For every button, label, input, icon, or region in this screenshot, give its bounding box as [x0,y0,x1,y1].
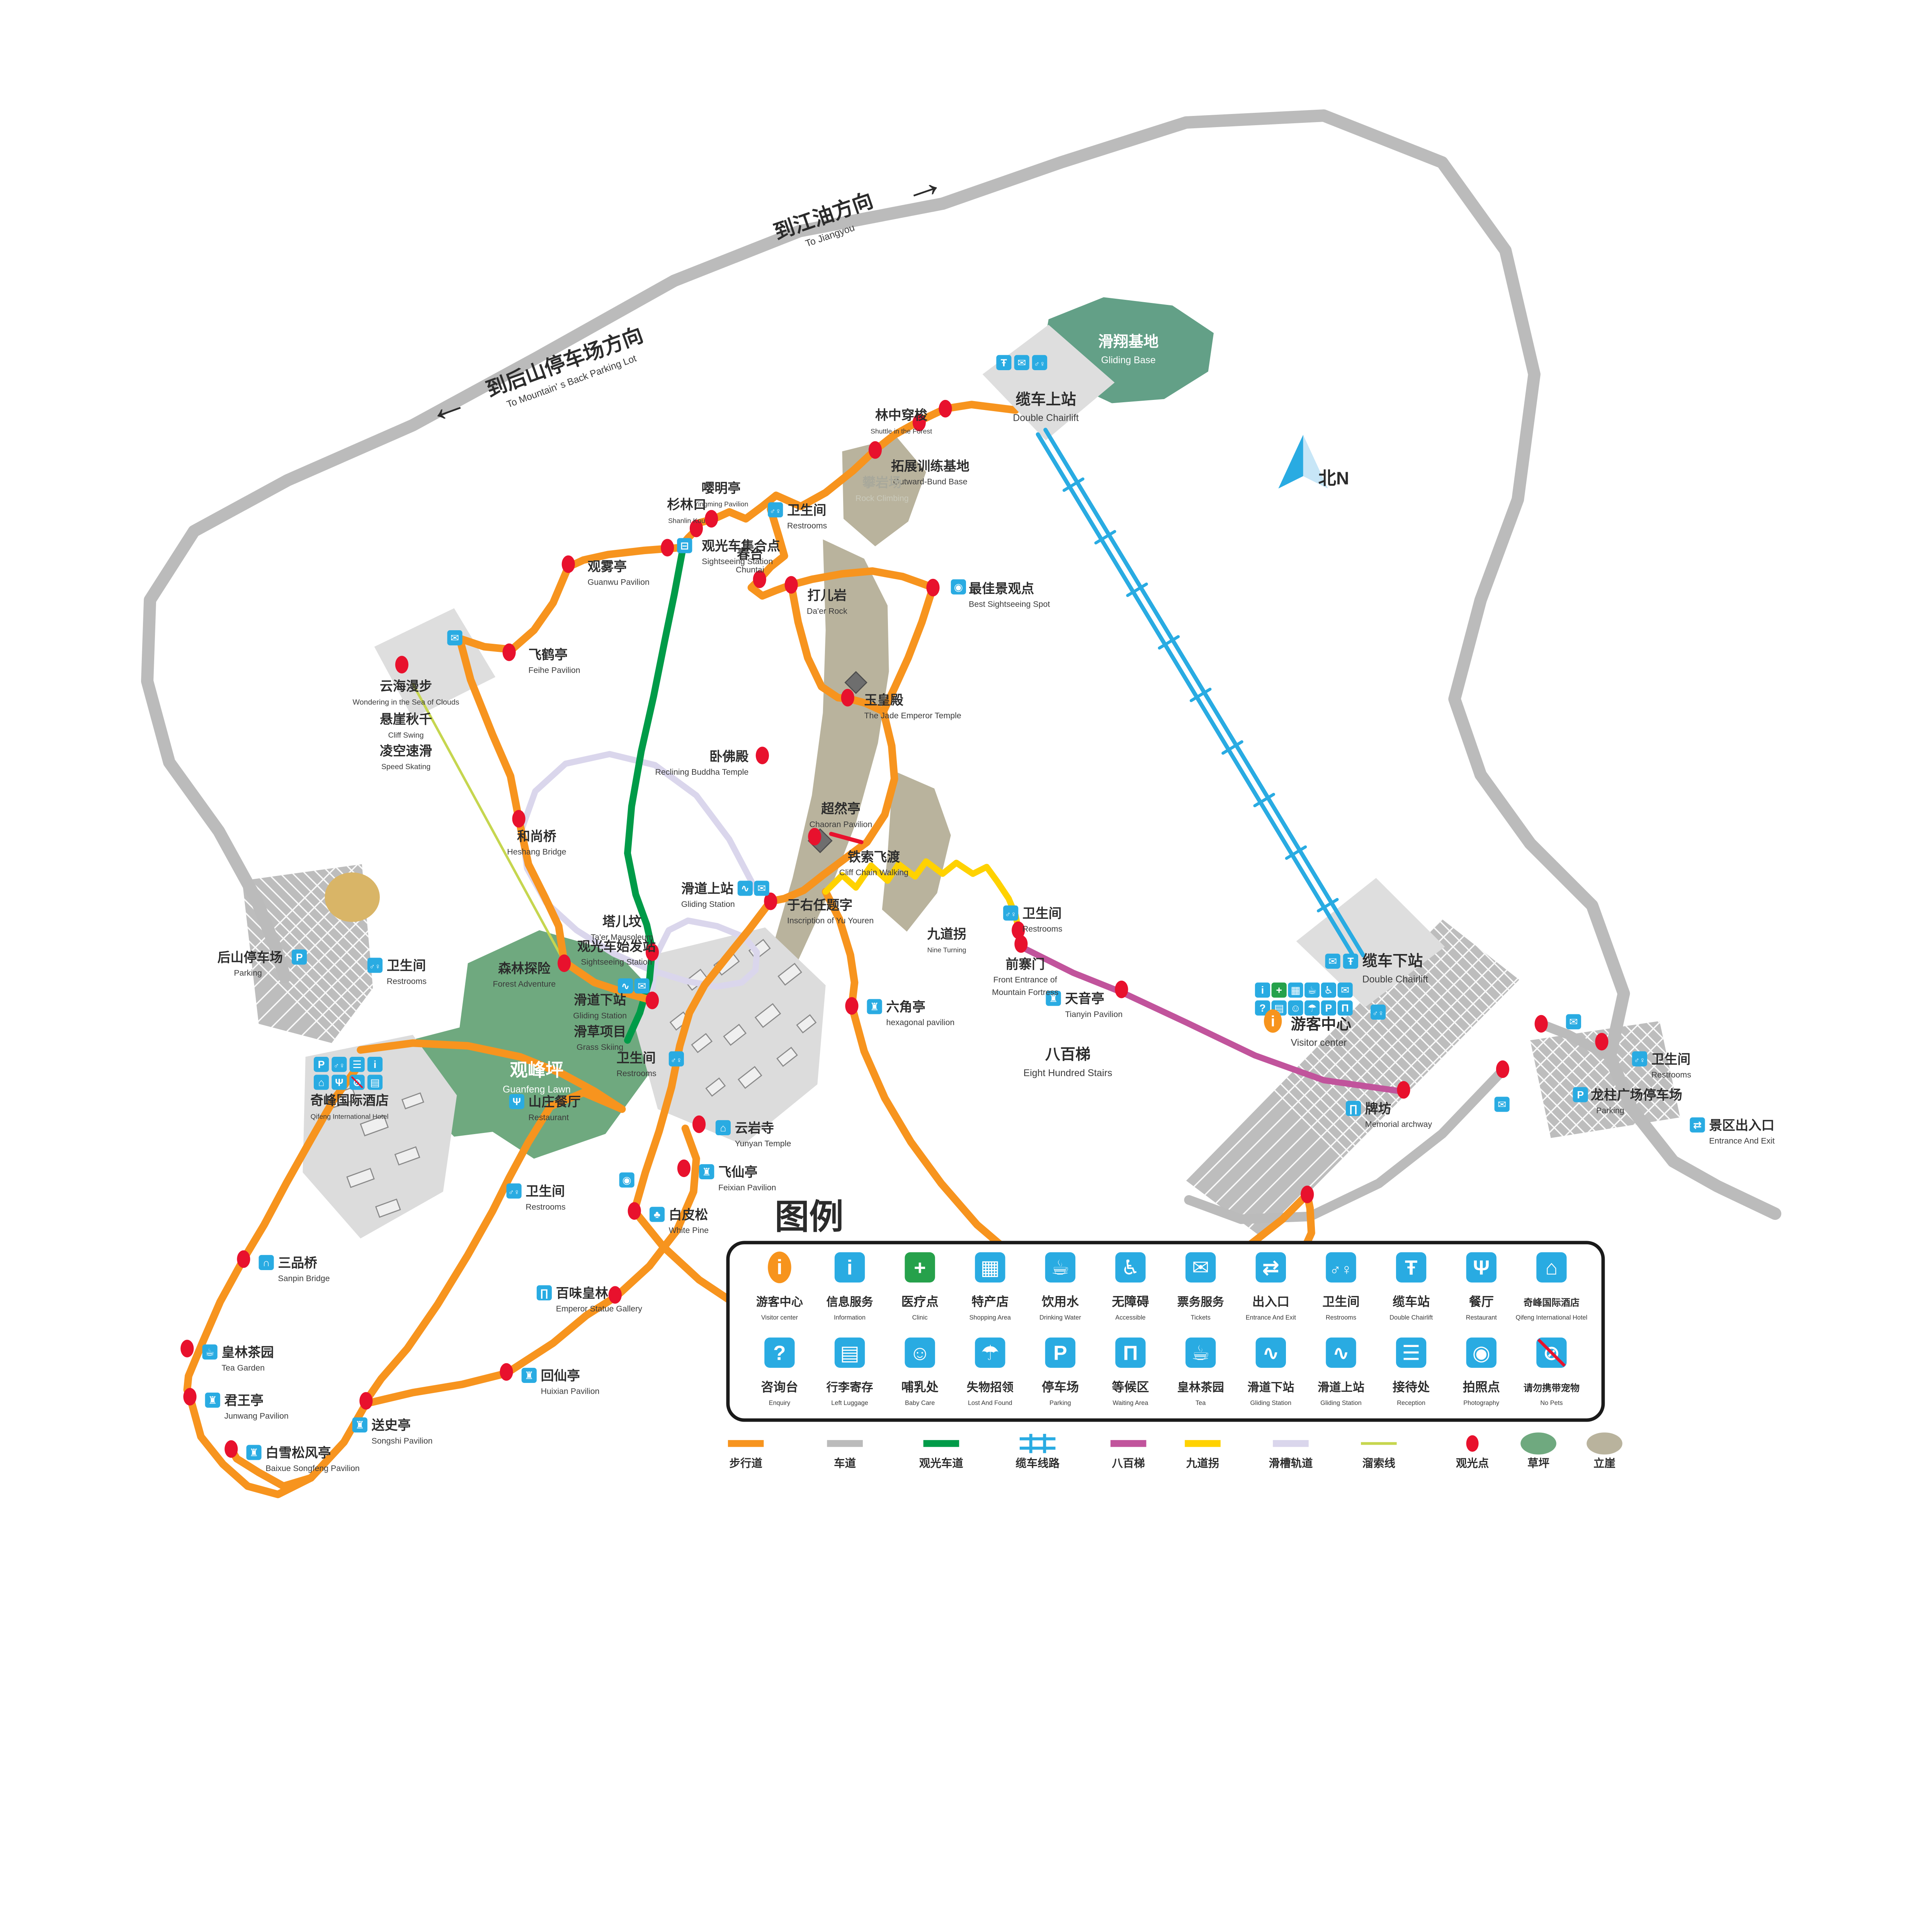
legend-line-zh: 九道拐 [1186,1457,1219,1469]
archway-icon: ∏ [1346,1101,1361,1116]
sight-dot [939,400,952,418]
label: i [1261,985,1264,996]
pavilion-icon: ♜ [522,1368,537,1383]
cloud-sea-walk-zh: 云海漫步 [380,679,432,694]
sight-dot [756,747,769,764]
label: ▤ [840,1342,859,1365]
sightseeing-station-start-zh: 观光车始发站 [577,939,656,954]
label: ∿ [1332,1342,1350,1365]
reception-icon: ☰ [350,1057,365,1072]
sight-dot [808,828,821,845]
gliding-icon: ∿ [618,978,633,993]
backhill-parking-en: Parking [234,968,262,978]
information-icon: i [1255,983,1270,998]
blob-swatch [1520,1432,1556,1454]
sight-dot [1595,1033,1608,1051]
label: ☕ [1308,985,1317,996]
shopping-icon: ▦ [1288,983,1303,998]
legend-line-zh: 溜索线 [1362,1457,1395,1469]
sight-dot [503,643,516,661]
nopets-icon: ⊘ [350,1075,365,1090]
feihe-pavilion-en: Feihe Pavilion [529,665,580,675]
qifeng-hotel-zh: 奇峰国际酒店 [310,1094,389,1108]
restrooms-icon: ♂♀ [1371,1005,1386,1020]
parking-icon: P [292,949,307,964]
label: ☕ [1191,1342,1210,1365]
legend-en: Waiting Area [1112,1400,1148,1406]
shanlinkou-en: Shanlin Kou [668,517,705,524]
line-swatch [728,1440,764,1447]
sight-dot [180,1340,194,1357]
lostfound-icon: ☂ [1304,1000,1320,1015]
photo-spot-road: ◉ [619,1172,634,1187]
legend-zh: 游客中心 [756,1295,803,1309]
shuttle-in-forest-zh: 林中穿梭 [875,408,927,423]
yunyan-temple-zh: 云岩寺 [735,1121,774,1136]
cliff-chain-walking: 铁索飞渡Cliff Chain Walking [839,850,908,877]
outward-bound-base-en: Outward-Bund Base [893,477,967,486]
legend-en: Parking [1049,1400,1071,1406]
shuttle-in-forest: 林中穿梭Shuttle in the Forest [871,400,952,435]
blob-swatch [1587,1432,1622,1454]
scenic-entrance-exit-zh: 景区出入口 [1709,1118,1774,1133]
restaurant-icon: Ψ [1466,1252,1497,1282]
memorial-archway-zh: 牌坊 [1365,1102,1391,1116]
tickets-icon: ✉ [1566,1014,1581,1029]
taer-mausoleum-zh: 塔儿坟 [602,915,642,929]
restrooms-southwest-zh: 卫生间 [526,1184,565,1199]
baixue-songfeng-pavilion-en: Baixue Songfeng Pavilion [265,1464,359,1473]
arrow-icon: ← [419,376,474,434]
legend-zh: 滑道下站 [1247,1381,1294,1394]
legend-line-zh: 缆车线路 [1015,1457,1060,1469]
legend-zh: 信息服务 [827,1295,874,1309]
legend-en: Entrance And Exit [1246,1314,1296,1321]
label: P [1053,1342,1067,1365]
speed-skating: 凌空速滑Speed Skating [380,744,432,771]
accessible-icon: ♿ [1321,983,1336,998]
label: P [1325,1002,1332,1014]
restrooms-icon: ♂♀ [1326,1252,1356,1282]
compass-needle [1278,435,1303,488]
reclining-buddha-temple-en: Reclining Buddha Temple [655,767,748,777]
label: Ψ [335,1077,344,1088]
gliding-station-top-en: Gliding Station [681,900,735,909]
sight-dot [628,1202,641,1220]
visitor-parking-slab [1104,919,1918,1238]
sight-dot [869,441,882,459]
chairlift-icon: Ŧ [1396,1252,1426,1282]
gliding-up-icon: ∿ [1326,1338,1356,1368]
pavilion-icon: ♜ [867,999,882,1014]
label: ♜ [249,1447,259,1458]
label: ☰ [1402,1342,1420,1365]
songshi-pavilion-en: Songshi Pavilion [372,1436,433,1446]
legend-zh: 停车场 [1042,1380,1079,1394]
legend-title: 图例 [775,1197,844,1236]
tianyin-pavilion: ♜天音亭Tianyin Pavilion [1046,981,1128,1019]
label: Ŧ [1405,1257,1418,1279]
junwang-pavilion-zh: 君王亭 [224,1393,263,1408]
feixian-pavilion-en: Feixian Pavilion [718,1183,776,1192]
restrooms-mid-zh: 卫生间 [616,1051,655,1065]
tickets-icon: ✉ [1325,954,1340,969]
sight-dot [677,1160,690,1177]
sight-dot [646,992,659,1009]
scenic-entrance-exit: ⇄景区出入口Entrance And Exit [1690,1117,1775,1146]
songshi-pavilion-zh: 送史亭 [372,1418,411,1433]
legend-en: Left Luggage [831,1400,868,1406]
gliding-station-bottom-zh: 滑道下站 [574,993,626,1008]
tea-garden-en: Tea Garden [221,1363,265,1372]
label: ♂♀ [1330,1262,1352,1278]
nine-turning-en: Nine Turning [927,946,966,954]
label: ∏ [1349,1103,1358,1115]
tickets-icon: ✉ [1495,1097,1510,1112]
legend-line-zh: 八百梯 [1112,1457,1145,1469]
sanpin-bridge: ∩三品桥Sanpin Bridge [237,1250,330,1283]
sight-dot [1301,1185,1314,1203]
legend-zh: 医疗点 [901,1295,939,1309]
gliding-icon: ∿ [738,881,753,896]
shanzhuang-restaurant-en: Restaurant [529,1113,569,1122]
legend-zh: 皇林茶园 [1177,1381,1224,1394]
restrooms-north-en: Restrooms [787,521,827,531]
label: ✉ [638,980,646,992]
label: ✉ [1569,1016,1578,1028]
restrooms-icon: ♂♀ [367,958,383,973]
baiwei-huanglin-en: Emperor Statue Gallery [556,1304,642,1313]
label: ☺ [1290,1002,1301,1014]
tea-garden-zh: 皇林茶园 [221,1345,274,1360]
restrooms-cable-bottom: ♂♀ [1371,1005,1386,1020]
restrooms-icon: ♂♀ [1032,355,1047,370]
label: ☂ [1308,1002,1317,1014]
label: ∏ [540,1287,549,1299]
tickets-icon: ✉ [634,978,650,993]
gliding-station-bottom-en: Gliding Station [573,1011,627,1020]
gliding-base-en: Gliding Base [1101,355,1156,366]
label: Ψ [1473,1257,1490,1279]
cable-top-station-zh: 缆车上站 [1015,391,1076,408]
legend-zh: 出入口 [1252,1295,1289,1309]
legend-en: Tickets [1191,1314,1211,1321]
sightseeing-station-start: 观光车始发站Sightseeing Station [577,939,659,967]
tickets-icon: ✉ [447,630,462,645]
label: ♿ [1121,1257,1140,1279]
legend-line-8: 观光点 [1456,1435,1489,1469]
label: ♂♀ [671,1056,682,1065]
clinic-icon: + [905,1252,935,1282]
sight-dot [224,1440,238,1458]
legend-en: Gliding Station [1250,1400,1292,1406]
tea-icon: ☕ [1185,1338,1216,1368]
tianyin-pavilion-en: Tianyin Pavilion [1065,1010,1122,1019]
pavilion-icon: ♜ [352,1417,367,1432]
label: ☰ [352,1059,362,1070]
gliding-base: 滑翔基地Gliding Base [1098,333,1159,366]
grass-skiing-zh: 滑草项目 [574,1025,626,1039]
eight-hundred-stairs-zh: 八百梯 [1045,1046,1090,1063]
feihe-pavilion: 飞鹤亭Feihe Pavilion [503,643,580,675]
legend-line-10: 立崖 [1587,1432,1622,1469]
label: ⇄ [1262,1257,1279,1279]
sight-dot [359,1392,372,1410]
line-swatch [827,1440,863,1447]
label: ∿ [741,883,749,894]
legend-en: Clinic [912,1314,928,1321]
enquiry-icon: ? [764,1338,794,1368]
yunyan-temple-en: Yunyan Temple [735,1139,791,1148]
legend-line-7: 溜索线 [1361,1442,1397,1469]
legend-zh: 饮用水 [1042,1295,1079,1309]
label: ♂♀ [1005,910,1016,918]
forest-adventure-zh: 森林探险 [498,961,550,976]
cloud-sea-walk-en: Wondering in the Sea of Clouds [353,698,459,706]
label: i [374,1059,376,1070]
guanfeng-lawn-en: Guanfeng Lawn [503,1084,571,1095]
label: ∿ [621,980,629,992]
photo-icon: ◉ [1466,1338,1497,1368]
daer-rock-en: Da'er Rock [807,606,847,616]
sight-dot [845,997,858,1015]
restrooms-east-zh: 卫生间 [1651,1052,1690,1067]
visitor-center-en: Visitor center [1291,1037,1347,1048]
restrooms-icon: ♂♀ [507,1184,522,1199]
information-icon: i [835,1252,865,1282]
legend-zh: 票务服务 [1177,1296,1225,1309]
reclining-buddha-temple-zh: 卧佛殿 [709,749,749,764]
restrooms-icon: ♂♀ [1003,905,1018,920]
sight-dot [500,1363,513,1381]
label: Ψ [512,1096,521,1107]
pavilion-icon: ♜ [246,1445,261,1460]
scenic-entrance-exit-en: Entrance And Exit [1709,1136,1775,1145]
legend-line-zh: 观光车道 [919,1457,963,1469]
sight-dot [705,510,718,528]
sight-dot [1397,1081,1410,1099]
chairlift-cable [1038,430,1363,960]
luggage-icon: ▤ [367,1075,383,1090]
cliff-swing-zh: 悬崖秋千 [380,712,432,727]
sanpin-bridge-en: Sanpin Bridge [278,1274,330,1283]
legend-line-2: 观光车道 [919,1440,963,1469]
label: ♂♀ [333,1061,345,1070]
label: ✉ [757,883,766,894]
chuntai: 春台Chuntai [736,547,766,588]
legend-en: Information [834,1314,866,1321]
tianyin-pavilion-zh: 天音亭 [1065,992,1104,1006]
legend-zh: 请勿携带宠物 [1524,1383,1580,1393]
chuntai-zh: 春台 [737,547,763,562]
eight-hundred-stairs: 八百梯Eight Hundred Stairs [1024,1046,1112,1078]
sightseeing-station-start-en: Sightseeing Station [581,957,652,966]
feixian-pavilion-zh: 飞仙亭 [718,1165,757,1180]
legend-zh: 奇峰国际酒店 [1524,1298,1580,1308]
archway-icon: ∏ [537,1285,552,1300]
sight-dot [1496,1060,1509,1078]
legend-zh: 哺乳处 [901,1380,939,1394]
nine-turning: 九道拐Nine Turning [927,927,966,954]
label: ⊟ [680,540,689,551]
bus-icon: ⊟ [677,538,692,553]
eight-hundred-stairs-en: Eight Hundred Stairs [1024,1068,1112,1078]
label: ∿ [1262,1342,1279,1365]
parking-icon: P [1321,1000,1336,1015]
daer-rock-zh: 打儿岩 [808,588,847,603]
shopping-icon: ▦ [975,1252,1005,1282]
junwang-pavilion-en: Junwang Pavilion [224,1412,288,1421]
front-fortress-gate-zh: 前寨门 [1005,957,1044,972]
label: ♣ [654,1209,660,1220]
speed-skating-en: Speed Skating [381,763,430,771]
compass: 北N [1278,435,1349,488]
chaoran-pavilion-en: Chaoran Pavilion [810,820,872,829]
waiting-icon: Π [1115,1338,1145,1368]
restrooms-backlot-en: Restrooms [387,976,427,986]
label: Π [1123,1342,1138,1365]
best-sightseeing-spot-zh: 最佳景观点 [969,582,1034,596]
chaoran-pavilion-zh: 超然亭 [821,801,860,816]
legend-line-9: 草坪 [1520,1432,1556,1469]
huixian-pavilion-zh: 回仙亭 [541,1369,580,1383]
legend-zh: 接待处 [1393,1380,1430,1394]
legend-en: No Pets [1540,1400,1563,1406]
lostfound-icon: ☂ [975,1338,1005,1368]
legend-zh: 特产店 [971,1295,1009,1309]
sight-dot [841,689,854,707]
label: ☕ [1051,1257,1070,1279]
nopets-icon: ⊘ [1536,1338,1566,1368]
sight-dot [395,656,408,673]
chuntai-en: Chuntai [736,565,764,574]
visitor-center: i+▦☕♿✉?▤☺☂PΠi游客中心Visitor center [1255,983,1353,1048]
sight-dot [785,576,798,594]
restrooms-north-zh: 卫生间 [787,503,826,518]
label: ◉ [1472,1342,1490,1365]
label: ⌂ [720,1122,726,1134]
information-icon: i [367,1057,383,1072]
rock-climbing-cliff [842,437,926,546]
longzhu-square-parking-zh: 龙柱广场停车场 [1591,1088,1682,1102]
cliff-chain-walking-en: Cliff Chain Walking [839,868,908,877]
slab-dot [1301,1185,1314,1203]
legend-en: Photography [1463,1400,1500,1406]
photo-icon: ◉ [619,1172,634,1187]
speed-skating-zh: 凌空速滑 [380,744,432,759]
sight-dot [692,1116,706,1133]
legend-en: Qifeng International Hotel [1515,1314,1587,1321]
scenic-area-map-page: 北N到江油方向To Jiangyou→到后山停车场方向To Mountain' … [0,0,1932,1552]
legend-line-zh: 草坪 [1527,1457,1549,1469]
legend-line-zh: 观光点 [1456,1457,1489,1469]
restrooms-backlot: ♂♀卫生间Restrooms [367,958,427,986]
cliff-swing: 悬崖秋千Cliff Swing [380,712,432,740]
legend-line-6: 滑槽轨道 [1269,1440,1313,1469]
label: ✉ [1017,357,1026,369]
label: ⌂ [1545,1257,1558,1279]
label: ♜ [702,1166,711,1178]
label: ▦ [1291,985,1300,996]
restrooms-nineturn-zh: 卫生间 [1022,906,1061,921]
hexagonal-pavilion: ♜六角亭hexagonal pavilion [845,997,954,1027]
label: ▤ [370,1077,380,1088]
baiwei-huanglin-zh: 百味皇林 [556,1286,608,1301]
restrooms-mid-en: Restrooms [616,1069,656,1078]
line-swatch [1111,1440,1146,1447]
label: ☕ [205,1346,214,1358]
restrooms-southwest-en: Restrooms [526,1202,565,1211]
restaurant-icon: Ψ [332,1075,347,1090]
sight-dot [512,810,525,828]
sight-dot [1535,1015,1548,1033]
back-lot-round [325,872,379,922]
sight-dot [183,1388,196,1406]
restrooms-backlot-zh: 卫生间 [387,959,426,973]
longzhu-parking-area [1447,1021,1874,1138]
legend-en: Visitor center [761,1314,798,1321]
visitor-center-icon: i [1264,1009,1282,1033]
jade-emperor-temple-en: The Jade Emperor Temple [864,711,961,720]
longzhu-square-parking-en: Parking [1596,1106,1624,1115]
hexagonal-pavilion-en: hexagonal pavilion [886,1018,954,1027]
legend-en: Restaurant [1466,1314,1497,1321]
label: ◉ [622,1174,631,1186]
parking-icon: P [314,1057,329,1072]
legend-line-4: 八百梯 [1111,1440,1146,1469]
gliding-down-icon: ∿ [1256,1338,1286,1368]
label: ♜ [524,1370,534,1381]
chairlift-icon: Ŧ [996,355,1011,370]
label: ♂♀ [1634,1056,1645,1065]
sight-dot [237,1250,250,1268]
label: ∩ [262,1257,270,1269]
sign-back-parking-arrow: ← [419,376,474,434]
sight-dot [926,579,939,597]
rock-climbing-zh: 攀岩场 [862,476,901,490]
front-fortress-gate: 前寨门Front Entrance ofMountain Fortress [992,935,1058,997]
sight-dot [558,954,571,972]
label: i [777,1256,782,1279]
label: ☺ [910,1342,930,1365]
drinking-water-icon: ☕ [1304,983,1320,998]
label: ☂ [981,1342,999,1365]
label: ⇄ [1693,1119,1702,1131]
cable-bottom-station-zh: 缆车下站 [1362,953,1423,969]
legend-en: Tea [1196,1400,1206,1406]
front-fortress-gate-en: Front Entrance of [993,975,1057,985]
tree-icon: ♣ [650,1207,665,1222]
restrooms-icon: ♂♀ [768,502,783,517]
legend-zh: 咨询台 [761,1380,798,1394]
sight-dot [661,539,674,557]
photo-icon: ◉ [951,579,966,594]
yingming-pavilion-zh: 嘤明亭 [701,481,740,496]
white-pine-zh: 白皮松 [669,1207,708,1222]
parking-icon: P [1573,1087,1588,1102]
legend-en: Baby Care [905,1400,935,1406]
guanfeng-lawn: 观峰坪Guanfeng Lawn [503,1060,571,1095]
legend-line-1: 车道 [827,1440,863,1469]
backhill-parking-zh: 后山停车场 [218,950,283,965]
drinking-water-icon: ☕ [1045,1252,1075,1282]
label: Π [1342,1002,1349,1014]
legend-zh: 滑道上站 [1318,1381,1364,1394]
legend-zh: 餐厅 [1469,1295,1494,1309]
legend-line-zh: 滑槽轨道 [1269,1457,1313,1469]
legend-zh: 行李寄存 [826,1380,873,1394]
exit-icon: ⇄ [1256,1252,1286,1282]
